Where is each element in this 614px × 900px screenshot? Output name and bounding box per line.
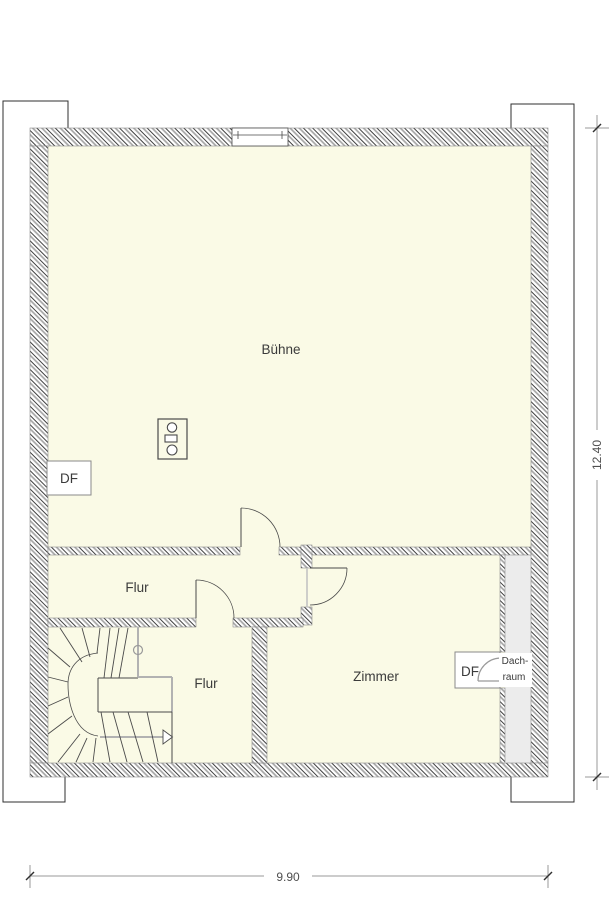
wall-outer-left: [30, 146, 48, 763]
dimension-width: 9.90: [26, 865, 552, 888]
wall-outer-bottom: [30, 763, 548, 777]
floor-plan-drawing: DF DF Dach- raum Bühne Flur Flur Zimmer …: [0, 0, 614, 900]
wall-flur-right: [233, 618, 303, 627]
room-label-flur-lower: Flur: [194, 676, 218, 691]
df-box-left: DF: [47, 461, 91, 495]
dachraum-line1: Dach-: [502, 656, 529, 667]
knee-wall-upper: [500, 555, 505, 652]
dachraum-line2: raum: [503, 672, 526, 683]
wall-middle-left: [48, 547, 240, 555]
df-left-label: DF: [60, 471, 78, 486]
wall-outer-top: [30, 128, 548, 146]
room-label-flur-middle: Flur: [125, 580, 149, 595]
df-right-label: DF: [461, 664, 479, 679]
wall-flur-left: [48, 618, 196, 627]
df-box-right: DF: [455, 652, 502, 688]
dimension-height: 12.40: [585, 115, 609, 790]
wall-middle-right: [279, 547, 531, 555]
room-label-zimmer: Zimmer: [353, 669, 399, 684]
knee-wall-lower: [500, 688, 505, 763]
wall-outer-right: [531, 146, 548, 763]
floor-plan-page: DF DF Dach- raum Bühne Flur Flur Zimmer …: [0, 0, 614, 900]
dimension-height-value: 12.40: [590, 440, 604, 470]
dachraum-label: Dach- raum: [499, 653, 532, 687]
room-label-buehne: Bühne: [261, 342, 300, 357]
window-symbol: [232, 128, 288, 146]
wall-zimmer-door-top: [301, 545, 312, 568]
dimension-width-value: 9.90: [276, 870, 300, 884]
wall-zimmer-left: [252, 627, 267, 763]
